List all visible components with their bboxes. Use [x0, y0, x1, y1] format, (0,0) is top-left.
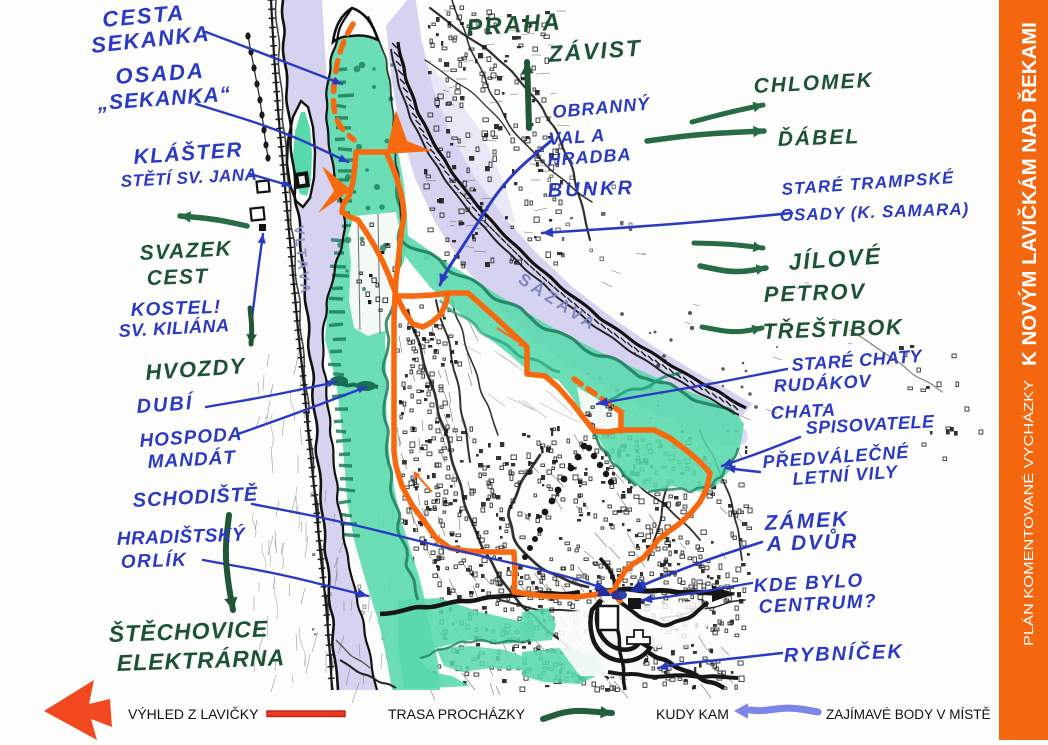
- svg-text:VÝHLED Z LAVIČKY: VÝHLED Z LAVIČKY: [128, 706, 259, 722]
- svg-text:SVAZEK: SVAZEK: [139, 237, 233, 265]
- svg-text:PETROV: PETROV: [763, 278, 867, 307]
- svg-text:ZAJÍMAVÉ BODY V MÍSTĚ: ZAJÍMAVÉ BODY V MÍSTĚ: [826, 707, 991, 722]
- svg-text:ĎÁBEL: ĎÁBEL: [777, 124, 860, 151]
- svg-text:BUNKR: BUNKR: [547, 177, 635, 202]
- svg-text:K NOVÝM LAVIČKÁM NAD ŘEKAMI: K NOVÝM LAVIČKÁM NAD ŘEKAMI: [1017, 22, 1041, 366]
- svg-text:DUBÍ: DUBÍ: [136, 391, 196, 418]
- svg-text:ŠTĚCHOVICE: ŠTĚCHOVICE: [108, 614, 268, 647]
- svg-text:PLÁN KOMENTOVANÉ VYCHÁZKY: PLÁN KOMENTOVANÉ VYCHÁZKY: [1021, 379, 1036, 646]
- svg-text:HRADIŠTSKÝ: HRADIŠTSKÝ: [116, 523, 247, 550]
- svg-text:TRASA PROCHÁZKY: TRASA PROCHÁZKY: [388, 706, 526, 722]
- svg-text:MANDÁT: MANDÁT: [147, 446, 237, 473]
- svg-text:CEST: CEST: [146, 265, 209, 290]
- svg-text:VAL A: VAL A: [548, 125, 606, 149]
- svg-text:TŘEŠTIBOK: TŘEŠTIBOK: [762, 314, 904, 344]
- svg-text:KUDY KAM: KUDY KAM: [656, 706, 729, 722]
- svg-text:ORLÍK: ORLÍK: [120, 549, 187, 573]
